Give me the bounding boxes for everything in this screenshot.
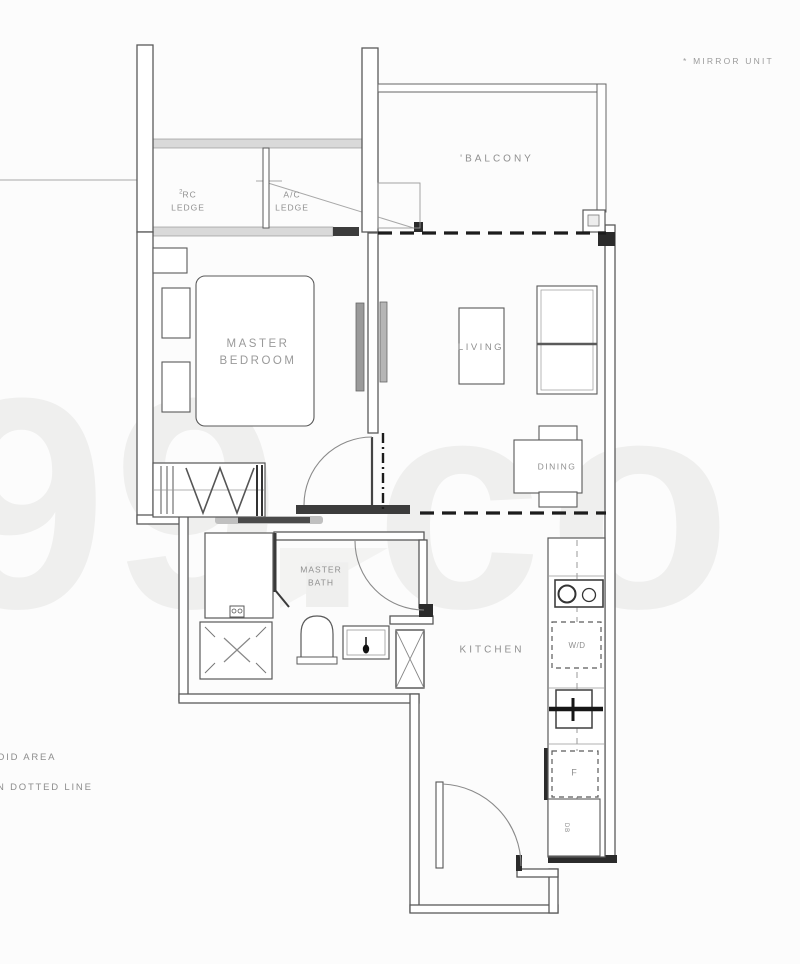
entry-door-leaf: [436, 782, 443, 868]
room-label-rc-ledge: 2RC LEDGE: [171, 188, 205, 214]
wardrobe: [153, 463, 265, 517]
floor-plan-linework: [0, 0, 800, 964]
db-label: DB: [563, 823, 569, 833]
living-furniture: [459, 286, 597, 507]
room-label-kitchen: KITCHEN: [460, 643, 525, 658]
vanity-counter: [205, 533, 273, 618]
washer-dryer-label: W/D: [568, 640, 585, 652]
legend-void-area-line2: N DOTTED LINE: [0, 781, 93, 795]
toilet: [301, 616, 333, 659]
room-label-living: LIVING: [458, 341, 504, 355]
room-label-balcony: 'BALCONY: [460, 152, 534, 167]
bedroom-door-arc: [304, 437, 372, 505]
room-label-ac-ledge: A/C LEDGE: [275, 188, 309, 214]
room-label-master-bath: MASTER BATH: [300, 563, 341, 589]
fridge-label: F: [571, 766, 579, 780]
entry-door-arc: [443, 784, 521, 866]
dining-chair: [539, 492, 577, 507]
kitchen-fixtures: [548, 538, 605, 857]
console-bedroom: [356, 303, 364, 391]
room-label-dining: DINING: [538, 461, 577, 474]
bedside-cabinet: [153, 248, 187, 273]
nightstand: [162, 288, 190, 338]
legend-void-area-line1: OID AREA: [0, 751, 56, 765]
db-box: [548, 799, 600, 856]
nightstand: [162, 362, 190, 412]
sofa: [537, 286, 597, 394]
dining-chair: [539, 426, 577, 441]
console-living: [380, 302, 387, 382]
mirror-unit-note: * MIRROR UNIT: [683, 55, 774, 68]
room-label-master-bedroom: MASTER BEDROOM: [220, 336, 297, 371]
floor-plan-canvas: 99.co: [0, 0, 800, 964]
